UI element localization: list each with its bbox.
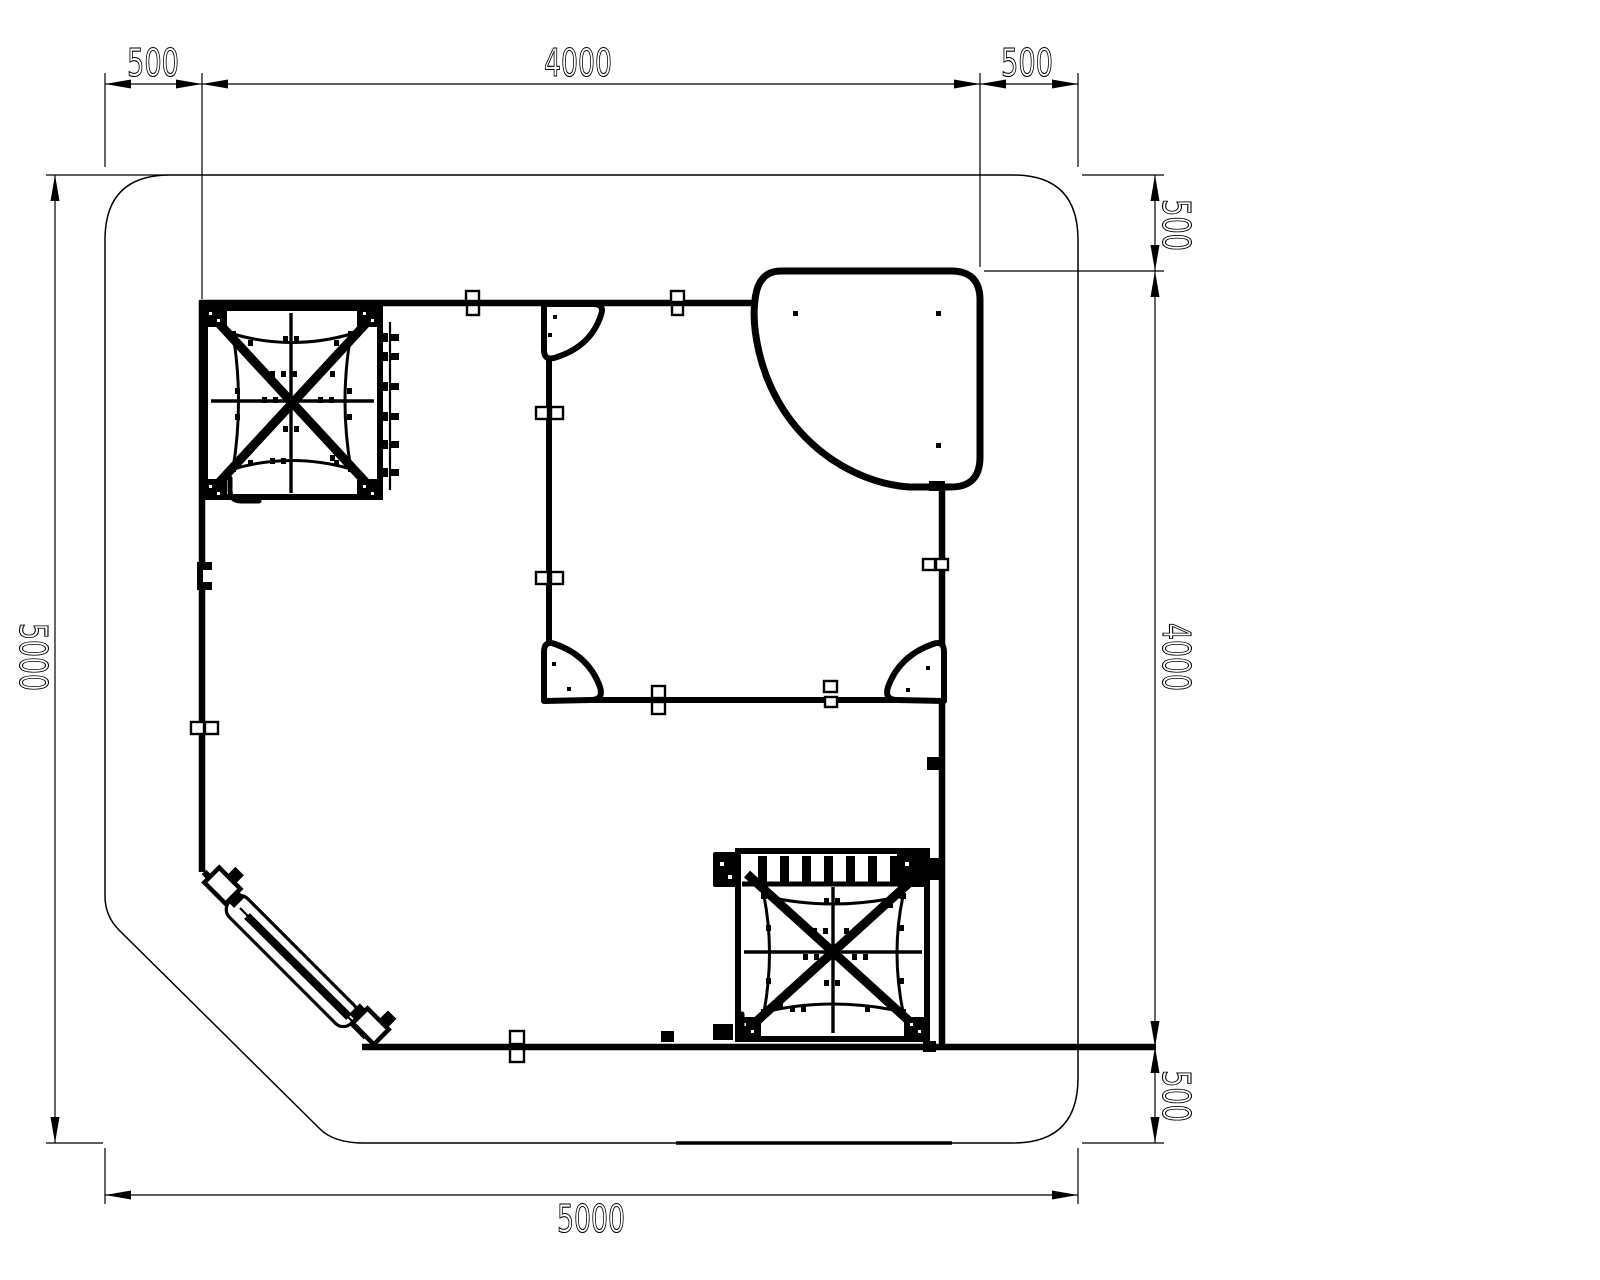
bolt-dot: [552, 662, 556, 666]
mat-corner: [230, 466, 236, 472]
dim-label-right-4000: 4000: [1154, 623, 1198, 691]
clamp: [510, 1049, 524, 1062]
clamp: [923, 559, 935, 570]
bolt-dot: [936, 443, 941, 448]
dimension-bottom: 5000: [105, 1148, 1078, 1241]
dim-label-bottom-5000: 5000: [557, 1197, 625, 1241]
trampoline-top-left: [203, 306, 399, 501]
clamp: [661, 1031, 674, 1042]
arrowhead: [1052, 1191, 1078, 1200]
mat-corner: [348, 466, 354, 472]
mat-corner: [348, 331, 354, 337]
dim-label-top-4000: 4000: [544, 41, 612, 85]
wall-bracket-notch: [203, 570, 213, 582]
clamp: [551, 572, 563, 584]
deck-outline: [544, 643, 601, 701]
arrowhead: [51, 1117, 60, 1143]
mat-corner: [900, 1009, 906, 1015]
clamp: [510, 1031, 524, 1044]
clamp: [671, 291, 684, 302]
arrowhead: [1052, 80, 1078, 89]
dimension-top: 500 4000 500: [105, 41, 1078, 299]
clamp: [536, 407, 548, 419]
clamp: [652, 686, 665, 698]
arrowhead: [51, 175, 60, 201]
bolt-dot: [793, 311, 798, 316]
clamp: [466, 291, 479, 301]
clamp: [551, 407, 563, 419]
mat-corner: [761, 893, 767, 899]
outer-tab: [923, 1041, 936, 1052]
cad-canvas: 500 4000 500 500 4000 500 5000 5000: [0, 0, 1600, 1280]
ladder-clamp-bottom: [346, 993, 398, 1045]
cad-drawing-sheet: 500 4000 500 500 4000 500 5000 5000: [0, 0, 1600, 1280]
deck-outline: [754, 271, 980, 487]
arrowhead: [1151, 1021, 1160, 1047]
arrowhead: [1151, 175, 1160, 201]
corner-deck-top-right: [754, 271, 980, 491]
bolt-dot: [553, 315, 557, 319]
deck-outline: [544, 304, 602, 358]
bolt-dot: [567, 687, 571, 691]
bolt-dot: [926, 666, 930, 670]
deck-wall-clamp: [929, 481, 945, 491]
bolt-dot: [548, 333, 552, 337]
bolt-dot: [936, 311, 941, 316]
arrowhead: [954, 80, 980, 89]
clamp: [672, 305, 683, 315]
ladder-rail-edge: [240, 908, 355, 1024]
clamp: [205, 722, 218, 734]
dim-label-top-right-500: 500: [1001, 41, 1053, 85]
deck-outline: [887, 643, 944, 701]
dim-label-right-top-500: 500: [1154, 199, 1198, 251]
clamp: [467, 305, 479, 315]
arrowhead: [105, 1191, 131, 1200]
access-ladder: [204, 859, 398, 1044]
mat-corner: [230, 331, 236, 337]
dimension-right: 500 4000 500: [984, 175, 1198, 1143]
bolt-dot: [906, 688, 910, 692]
corner-deck-inner-tl: [544, 304, 602, 358]
mat-corner: [900, 893, 906, 899]
clamp: [191, 722, 204, 734]
arrowhead: [202, 80, 228, 89]
dim-label-right-bottom-500: 500: [1154, 1070, 1198, 1122]
corner-deck-inner-br: [887, 643, 944, 701]
mat-corner: [761, 1009, 767, 1015]
clamp: [824, 681, 837, 692]
arrowhead: [176, 80, 202, 89]
clamp: [927, 757, 939, 770]
dim-label-left-5000: 5000: [11, 623, 55, 691]
dim-label-top-left-500: 500: [127, 41, 179, 85]
trampoline-bottom-right: [713, 851, 941, 1052]
outer-tab: [713, 1024, 733, 1040]
clamp: [536, 572, 548, 584]
clamp: [825, 697, 837, 707]
corner-deck-inner-bl: [544, 643, 601, 701]
arrowhead: [1151, 271, 1160, 297]
dimension-left: 5000: [11, 175, 167, 1143]
clamp: [936, 559, 948, 570]
clamp: [652, 702, 665, 714]
